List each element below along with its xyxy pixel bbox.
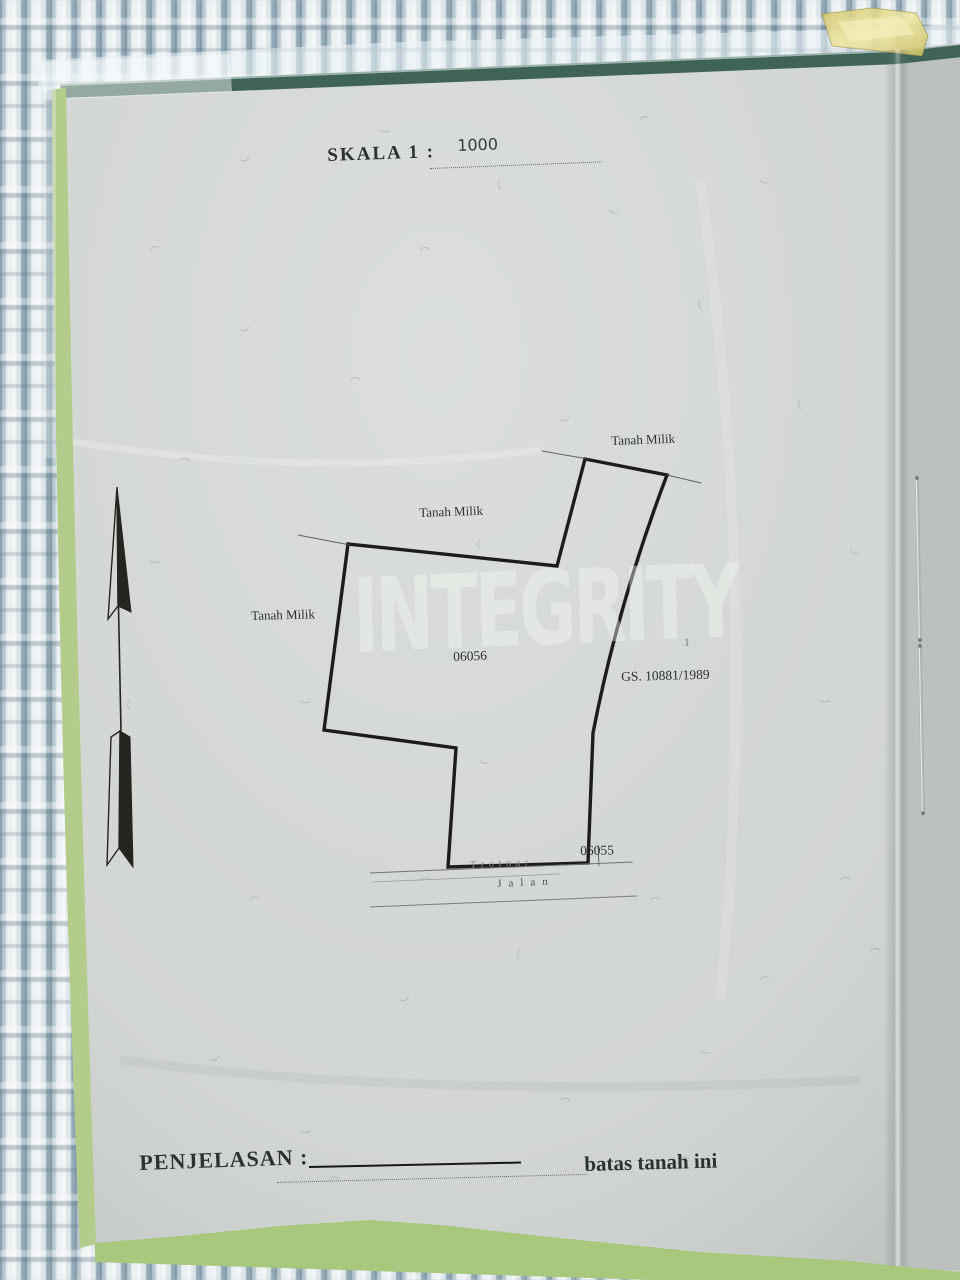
tanah-milik-label-top: Tanah Milik [611,432,675,447]
gs-number-label: GS. 10881/1989 [621,668,710,684]
pen-mark: 1 [684,638,690,649]
photo-of-survey-document: SKALA 1 : 1000 Tanah Milik Tanah Milik T… [0,0,960,1280]
legend-label: PENJELASAN : [139,1146,309,1174]
plastic-wrap-left [44,88,56,458]
integrity-watermark: INTEGRITY [352,550,738,668]
tanah-milik-label-left: Tanah Milik [251,607,315,622]
adjacent-parcel-number-label: 06055 [580,843,614,857]
scale-value-handwritten: 1000 [457,137,498,154]
scale-label: SKALA 1 : [327,142,435,165]
tanah-milik-label-middle: Tanah Milik [419,504,483,519]
parcel-number-label: 06056 [453,649,487,664]
page-fold-shadow [884,50,910,1266]
legend-description: batas tanah ini [584,1151,718,1175]
plastic-wrap-top-left [40,54,232,100]
